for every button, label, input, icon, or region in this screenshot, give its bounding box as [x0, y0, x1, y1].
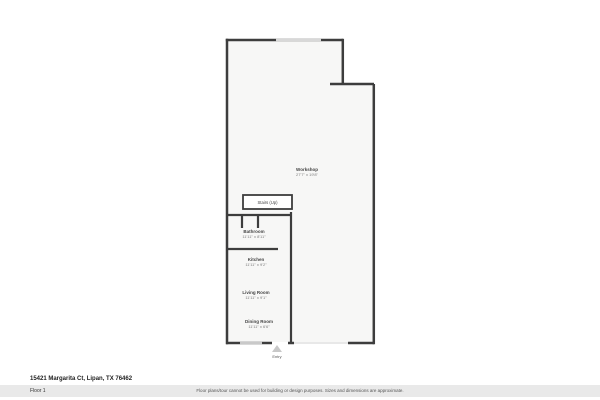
room-dimensions: 11'11" x 9'2"	[245, 263, 266, 268]
floorplan-page: Workshop 27'7" x 19'8" Stairs (Up) Bathr…	[0, 0, 600, 400]
floor-label: Floor 1	[30, 388, 46, 394]
room-label-kitchen: Kitchen 11'11" x 9'2"	[245, 257, 266, 268]
entry-label: Entry	[272, 354, 281, 359]
room-label-workshop: Workshop 27'7" x 19'8"	[296, 167, 318, 178]
room-label-stairs: Stairs (Up)	[257, 200, 277, 205]
room-label-living-room: Living Room 11'11" x 9'1"	[242, 290, 269, 301]
property-address: 15421 Margarita Ct, Lipan, TX 76462	[30, 376, 132, 382]
disclaimer-bar: Floor plans/tour cannot be used for buil…	[0, 385, 600, 397]
room-dimensions: 11'11" x 9'1"	[242, 296, 269, 301]
room-dimensions: 11'11" x 6'6"	[245, 325, 273, 330]
room-label-bathroom: Bathroom 11'11" x 8'11"	[242, 229, 265, 240]
disclaimer-text: Floor plans/tour cannot be used for buil…	[0, 385, 600, 397]
room-dimensions: 11'11" x 8'11"	[242, 235, 265, 240]
room-label-dining-room: Dining Room 11'11" x 6'6"	[245, 319, 273, 330]
floorplan-drawing	[0, 0, 600, 400]
room-dimensions: 27'7" x 19'8"	[296, 173, 318, 178]
entry-arrow-icon	[272, 345, 282, 352]
